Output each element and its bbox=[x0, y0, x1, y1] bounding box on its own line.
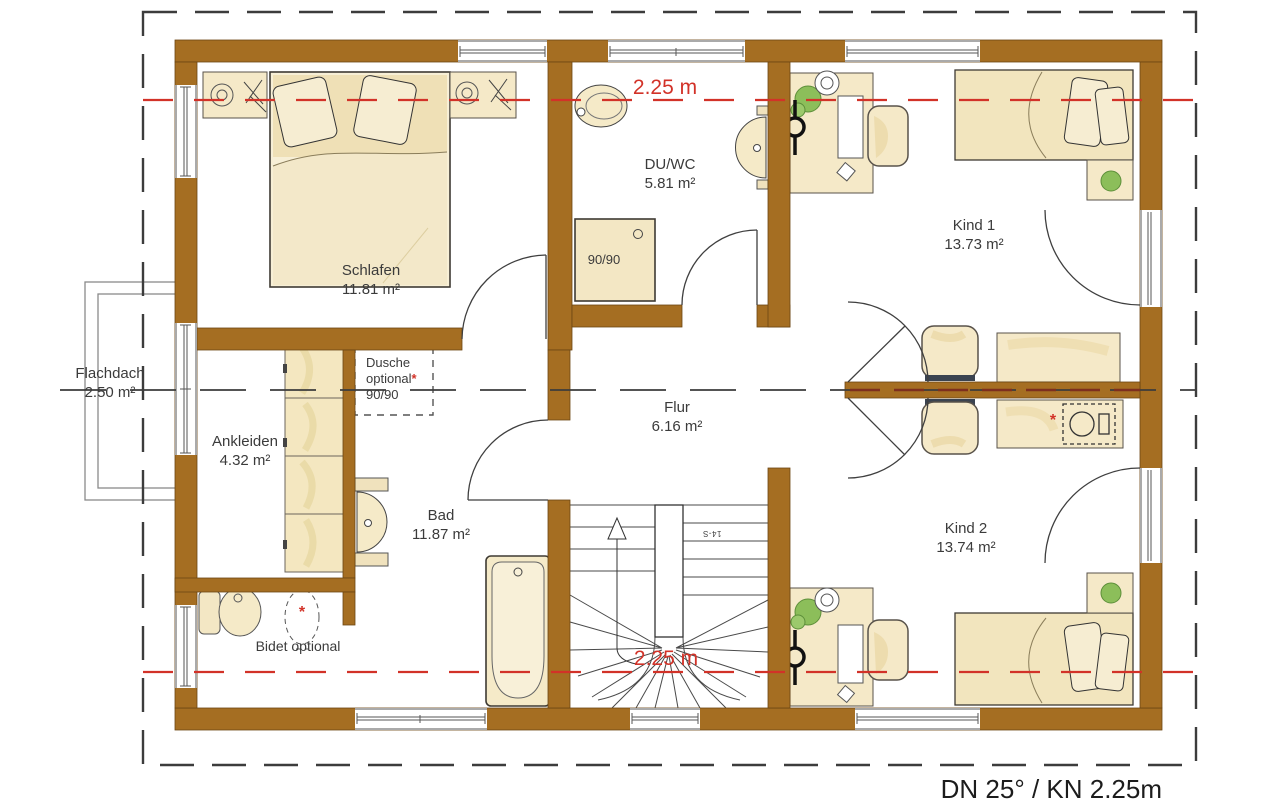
room-area: 2.50 m² bbox=[75, 383, 144, 402]
nightstand bbox=[450, 72, 516, 118]
room-label-flachdach: Flachdach 2.50 m² bbox=[75, 364, 144, 402]
washbasin-icon bbox=[735, 106, 768, 189]
terrace-door bbox=[175, 323, 197, 455]
window bbox=[175, 605, 197, 688]
floor-plan-drawing bbox=[0, 0, 1280, 808]
window bbox=[355, 708, 487, 730]
desk bbox=[786, 71, 873, 193]
double-bed bbox=[270, 72, 450, 287]
desk-chair bbox=[922, 326, 978, 381]
room-name: Flur bbox=[652, 398, 703, 417]
room-label-schlafen: Schlafen 11.81 m² bbox=[342, 261, 400, 299]
window bbox=[845, 40, 980, 62]
dusche-line1: Dusche bbox=[366, 355, 417, 371]
optional-asterisk: * bbox=[412, 371, 417, 386]
toilet-icon bbox=[199, 588, 261, 636]
room-area: 13.74 m² bbox=[936, 538, 995, 557]
bidet-optional-label: Bidet optional bbox=[256, 638, 341, 656]
room-label-duwc: DU/WC 5.81 m² bbox=[645, 155, 696, 193]
room-name: Flachdach bbox=[75, 364, 144, 383]
bathtub-icon bbox=[486, 556, 550, 706]
room-area: 5.81 m² bbox=[645, 174, 696, 193]
room-label-kind2: Kind 2 13.74 m² bbox=[936, 519, 995, 557]
roof-spec-label: DN 25° / KN 2.25m bbox=[941, 774, 1162, 805]
window bbox=[608, 40, 745, 62]
desk-chair bbox=[922, 399, 978, 454]
room-area: 11.81 m² bbox=[342, 280, 400, 299]
optional-asterisk: * bbox=[1050, 412, 1056, 430]
room-name: Schlafen bbox=[342, 261, 400, 280]
window bbox=[175, 85, 197, 178]
washbasin-icon bbox=[355, 478, 388, 566]
door-swing bbox=[1045, 210, 1140, 305]
room-name: Kind 2 bbox=[936, 519, 995, 538]
room-name: Ankleiden bbox=[212, 432, 278, 451]
knee-wall-dimension-top: 2.25 m bbox=[633, 76, 697, 100]
desk bbox=[786, 588, 873, 706]
door-swing bbox=[848, 302, 928, 382]
room-name: Kind 1 bbox=[944, 216, 1003, 235]
stair-note: 14-S bbox=[703, 529, 722, 538]
window bbox=[855, 708, 980, 730]
room-area: 13.73 m² bbox=[944, 235, 1003, 254]
room-area: 6.16 m² bbox=[652, 417, 703, 436]
terrace-door bbox=[1140, 468, 1162, 563]
door-swing bbox=[1045, 468, 1140, 563]
room-name: DU/WC bbox=[645, 155, 696, 174]
nightstand bbox=[1087, 573, 1133, 613]
room-label-kind1: Kind 1 13.73 m² bbox=[944, 216, 1003, 254]
room-label-bad: Bad 11.87 m² bbox=[412, 506, 470, 544]
knee-wall-dimension-bottom: 2.25 m bbox=[634, 647, 698, 671]
bed bbox=[955, 613, 1133, 705]
nightstand bbox=[1087, 160, 1133, 200]
dusche-line2: optional bbox=[366, 371, 412, 386]
desk bbox=[997, 333, 1120, 382]
bed bbox=[955, 70, 1133, 160]
room-label-ankleiden: Ankleiden 4.32 m² bbox=[212, 432, 278, 470]
room-area: 11.87 m² bbox=[412, 525, 470, 544]
floor-plan: Schlafen 11.81 m² DU/WC 5.81 m² Kind 1 1… bbox=[0, 0, 1280, 808]
up-arrow-icon bbox=[608, 518, 636, 664]
terrace-door bbox=[1140, 210, 1162, 307]
door-swing bbox=[462, 255, 546, 339]
stairs bbox=[570, 505, 768, 708]
washbasin-icon bbox=[575, 85, 627, 127]
room-name: Bad bbox=[412, 506, 470, 525]
dusche-size: 90/90 bbox=[366, 387, 417, 403]
window bbox=[458, 40, 547, 62]
shower-size-label: 90/90 bbox=[588, 252, 621, 269]
door-swing bbox=[468, 420, 548, 500]
sideboard-washbasin-icon bbox=[997, 400, 1123, 448]
nightstand bbox=[203, 72, 267, 118]
dusche-optional-label: Dusche optional* 90/90 bbox=[366, 355, 417, 403]
door-swing bbox=[848, 398, 928, 478]
door-swing bbox=[682, 230, 757, 305]
room-area: 4.32 m² bbox=[212, 451, 278, 470]
desk-chair bbox=[868, 106, 908, 166]
room-label-flur: Flur 6.16 m² bbox=[652, 398, 703, 436]
wardrobe bbox=[283, 340, 345, 572]
window bbox=[630, 708, 700, 730]
optional-asterisk: * bbox=[299, 604, 305, 622]
